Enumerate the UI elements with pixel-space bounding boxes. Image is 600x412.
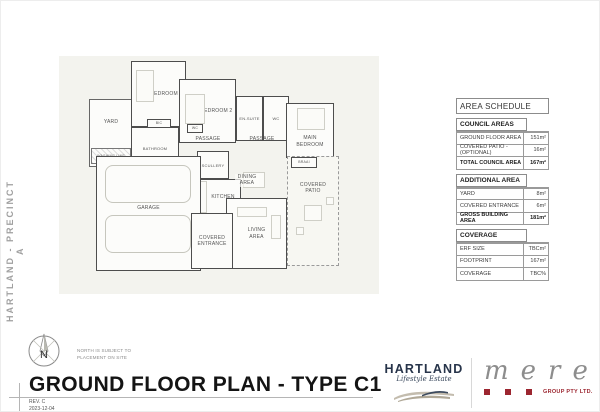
north-note-line: PLACEMENT ON SITE [77,355,139,362]
bed-icon [185,94,205,124]
row-label: GROUND FLOOR AREA [457,133,523,144]
room-living: LIVING AREA [226,198,287,269]
row-value: 151m² [523,133,548,144]
room-label: SCULLERY [202,163,225,168]
revision-block: REV. C 2023-12-04 [29,399,55,412]
north-note: NORTH IS SUBJECT TO PLACEMENT ON SITE [77,348,139,362]
room-passage-b: PASSAGE [235,132,289,146]
title-block-crosshair [19,383,20,412]
row-label: ERF SIZE [457,244,523,255]
room-dining: DINING AREA [229,146,287,198]
row-label: COVERED ENTRANCE [457,200,523,212]
car-icon [105,165,191,203]
patio-chair [296,227,304,235]
bed-icon [297,108,325,130]
room-label: COVERED ENTRANCE [195,235,229,248]
room-scullery: SCULLERY [197,151,229,179]
room-label: EN-SUITE [239,116,259,121]
table-row: COVERED ENTRANCE 6m² [456,200,549,213]
room-passage-a: PASSAGE [181,132,235,146]
mere-square-icon [505,389,511,395]
mere-logo: mere GROUP PTY LTD. [484,356,596,395]
row-value: TBCm² [523,244,548,255]
row-label: COVERED PATIO -(OPTIONAL) [457,145,523,157]
row-label: FOOTPRINT [457,256,523,268]
logo-separator [471,358,472,408]
table-row: GROSS BUILDING AREA 181m² [456,213,549,226]
room-garage: GARAGE [96,156,201,271]
room-bedroom-1: BEDROOM 1 [131,61,186,127]
room-label: LIVING AREA [243,227,271,240]
mere-logo-subtext: GROUP PTY LTD. [543,389,593,395]
project-label: HARTLAND - PRECINCT A [5,176,19,326]
section-header-council-areas: COUNCIL AREAS [456,118,527,131]
table-row: ERF SIZE TBCm² [456,243,549,256]
row-value: 167m² [523,256,548,268]
row-label: COVERAGE [457,268,523,280]
revision-label: REV. C [29,399,55,406]
row-label: TOTAL COUNCIL AREA [457,157,523,169]
mere-logo-name: mere [484,356,596,387]
row-label: YARD [457,189,523,200]
page-title: GROUND FLOOR PLAN - TYPE C1 [29,373,382,397]
room-label: BIC [156,121,162,125]
row-value: 167m² [523,157,548,169]
title-divider [9,397,373,398]
area-schedule: AREA SCHEDULE COUNCIL AREAS GROUND FLOOR… [456,98,549,281]
table-row: COVERED PATIO -(OPTIONAL) 16m² [456,145,549,158]
row-label: GROSS BUILDING AREA [457,213,523,225]
section-header-additional-area: ADDITIONAL AREA [456,174,527,187]
revision-date: 2023-12-04 [29,406,55,412]
section-coverage: ERF SIZE TBCm² FOOTPRINT 167m² COVERAGE … [456,242,549,281]
section-header-coverage: COVERAGE [456,229,527,242]
hartland-logo-tagline: Lifestyle Estate [384,375,464,383]
drawing-sheet: HARTLAND - PRECINCT A YARD WASHING LINE … [0,0,600,412]
section-council-areas: GROUND FLOOR AREA 151m² COVERED PATIO -(… [456,131,549,170]
floor-plan: YARD WASHING LINE BEDROOM 1 BEDROOM 2 BI… [59,56,379,294]
room-label: GARAGE [97,205,200,211]
north-note-line: NORTH IS SUBJECT TO [77,348,139,355]
room-label: COVERED PATIO [296,182,330,195]
table-row: FOOTPRINT 167m² [456,256,549,269]
table-row: GROUND FLOOR AREA 151m² [456,132,549,145]
room-label: MAIN BEDROOM [292,135,328,148]
row-value: 16m² [523,145,548,157]
room-label: WC [272,116,279,121]
room-label: BATHROOM [143,146,167,151]
section-additional-area: YARD 8m² COVERED ENTRANCE 6m² GROSS BUIL… [456,187,549,226]
hartland-logo: HARTLAND Lifestyle Estate [384,362,464,407]
mere-square-icon [526,389,532,395]
patio-chair [326,197,334,205]
room-label: PASSAGE [250,136,275,142]
table-row: YARD 8m² [456,188,549,201]
north-compass-icon: N [25,332,63,370]
room-label: WC [192,126,198,130]
room-main-bedroom: MAIN BEDROOM [286,103,334,158]
braai: BRAAI [291,157,317,168]
hartland-fields-icon [392,384,456,402]
table-row: TOTAL COUNCIL AREA 167m² [456,157,549,170]
area-schedule-title: AREA SCHEDULE [456,98,549,114]
table-row: COVERAGE TBC% [456,268,549,281]
room-covered-patio: COVERED PATIO [287,156,339,266]
row-value: 181m² [523,213,548,225]
row-value: 6m² [523,200,548,212]
room-covered-entrance: COVERED ENTRANCE [191,213,233,269]
sofa-icon [237,207,267,217]
sofa-icon [271,215,281,239]
room-label: DINING AREA [235,174,259,187]
patio-table [304,205,322,221]
car-icon [105,215,191,253]
hartland-logo-name: HARTLAND [384,362,464,376]
row-value: TBC% [523,268,548,280]
bed-icon [136,70,154,102]
room-label: BRAAI [298,160,310,164]
svg-text:N: N [40,349,48,361]
mere-square-icon [484,389,490,395]
room-label: YARD [104,119,118,125]
room-label: PASSAGE [196,136,221,142]
row-value: 8m² [523,189,548,200]
